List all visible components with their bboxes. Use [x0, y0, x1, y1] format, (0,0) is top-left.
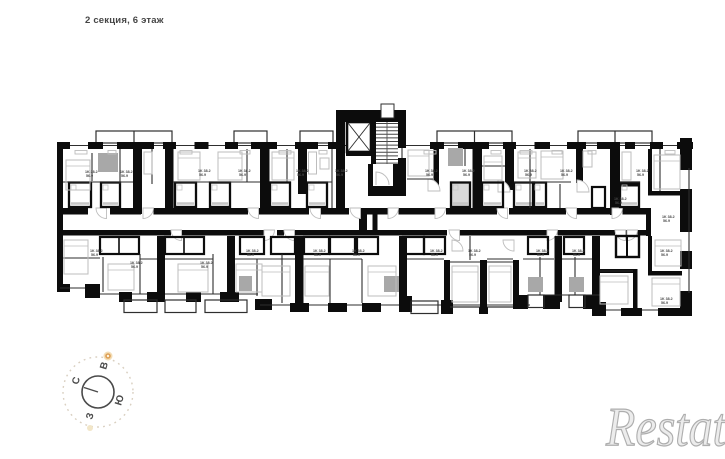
svg-text:1K 38.256.9: 1K 38.256.9	[468, 249, 481, 257]
svg-text:1K 38.256.9: 1K 38.256.9	[200, 261, 213, 269]
svg-text:1K 38.256.9: 1K 38.256.9	[238, 169, 251, 177]
svg-text:1K 38.256.9: 1K 38.256.9	[660, 249, 673, 257]
svg-text:1K 38.256.9: 1K 38.256.9	[335, 169, 348, 177]
svg-text:1K 38.256.9: 1K 38.256.9	[524, 169, 537, 177]
svg-text:1K 38.256.9: 1K 38.256.9	[85, 170, 98, 178]
svg-text:1K 38.256.9: 1K 38.256.9	[660, 297, 673, 305]
svg-text:1K 38.256.9: 1K 38.256.9	[636, 169, 649, 177]
svg-text:1K 38.256.9: 1K 38.256.9	[198, 169, 211, 177]
svg-text:1K 38.256.9: 1K 38.256.9	[120, 170, 133, 178]
svg-text:1K 38.256.9: 1K 38.256.9	[130, 261, 143, 269]
svg-text:В: В	[98, 361, 111, 371]
svg-text:С: С	[70, 376, 83, 386]
svg-text:Ю: Ю	[113, 394, 127, 407]
svg-text:1K 38.256.9: 1K 38.256.9	[662, 215, 675, 223]
svg-text:1K 38.256.9: 1K 38.256.9	[560, 169, 573, 177]
svg-text:З: З	[84, 412, 96, 421]
